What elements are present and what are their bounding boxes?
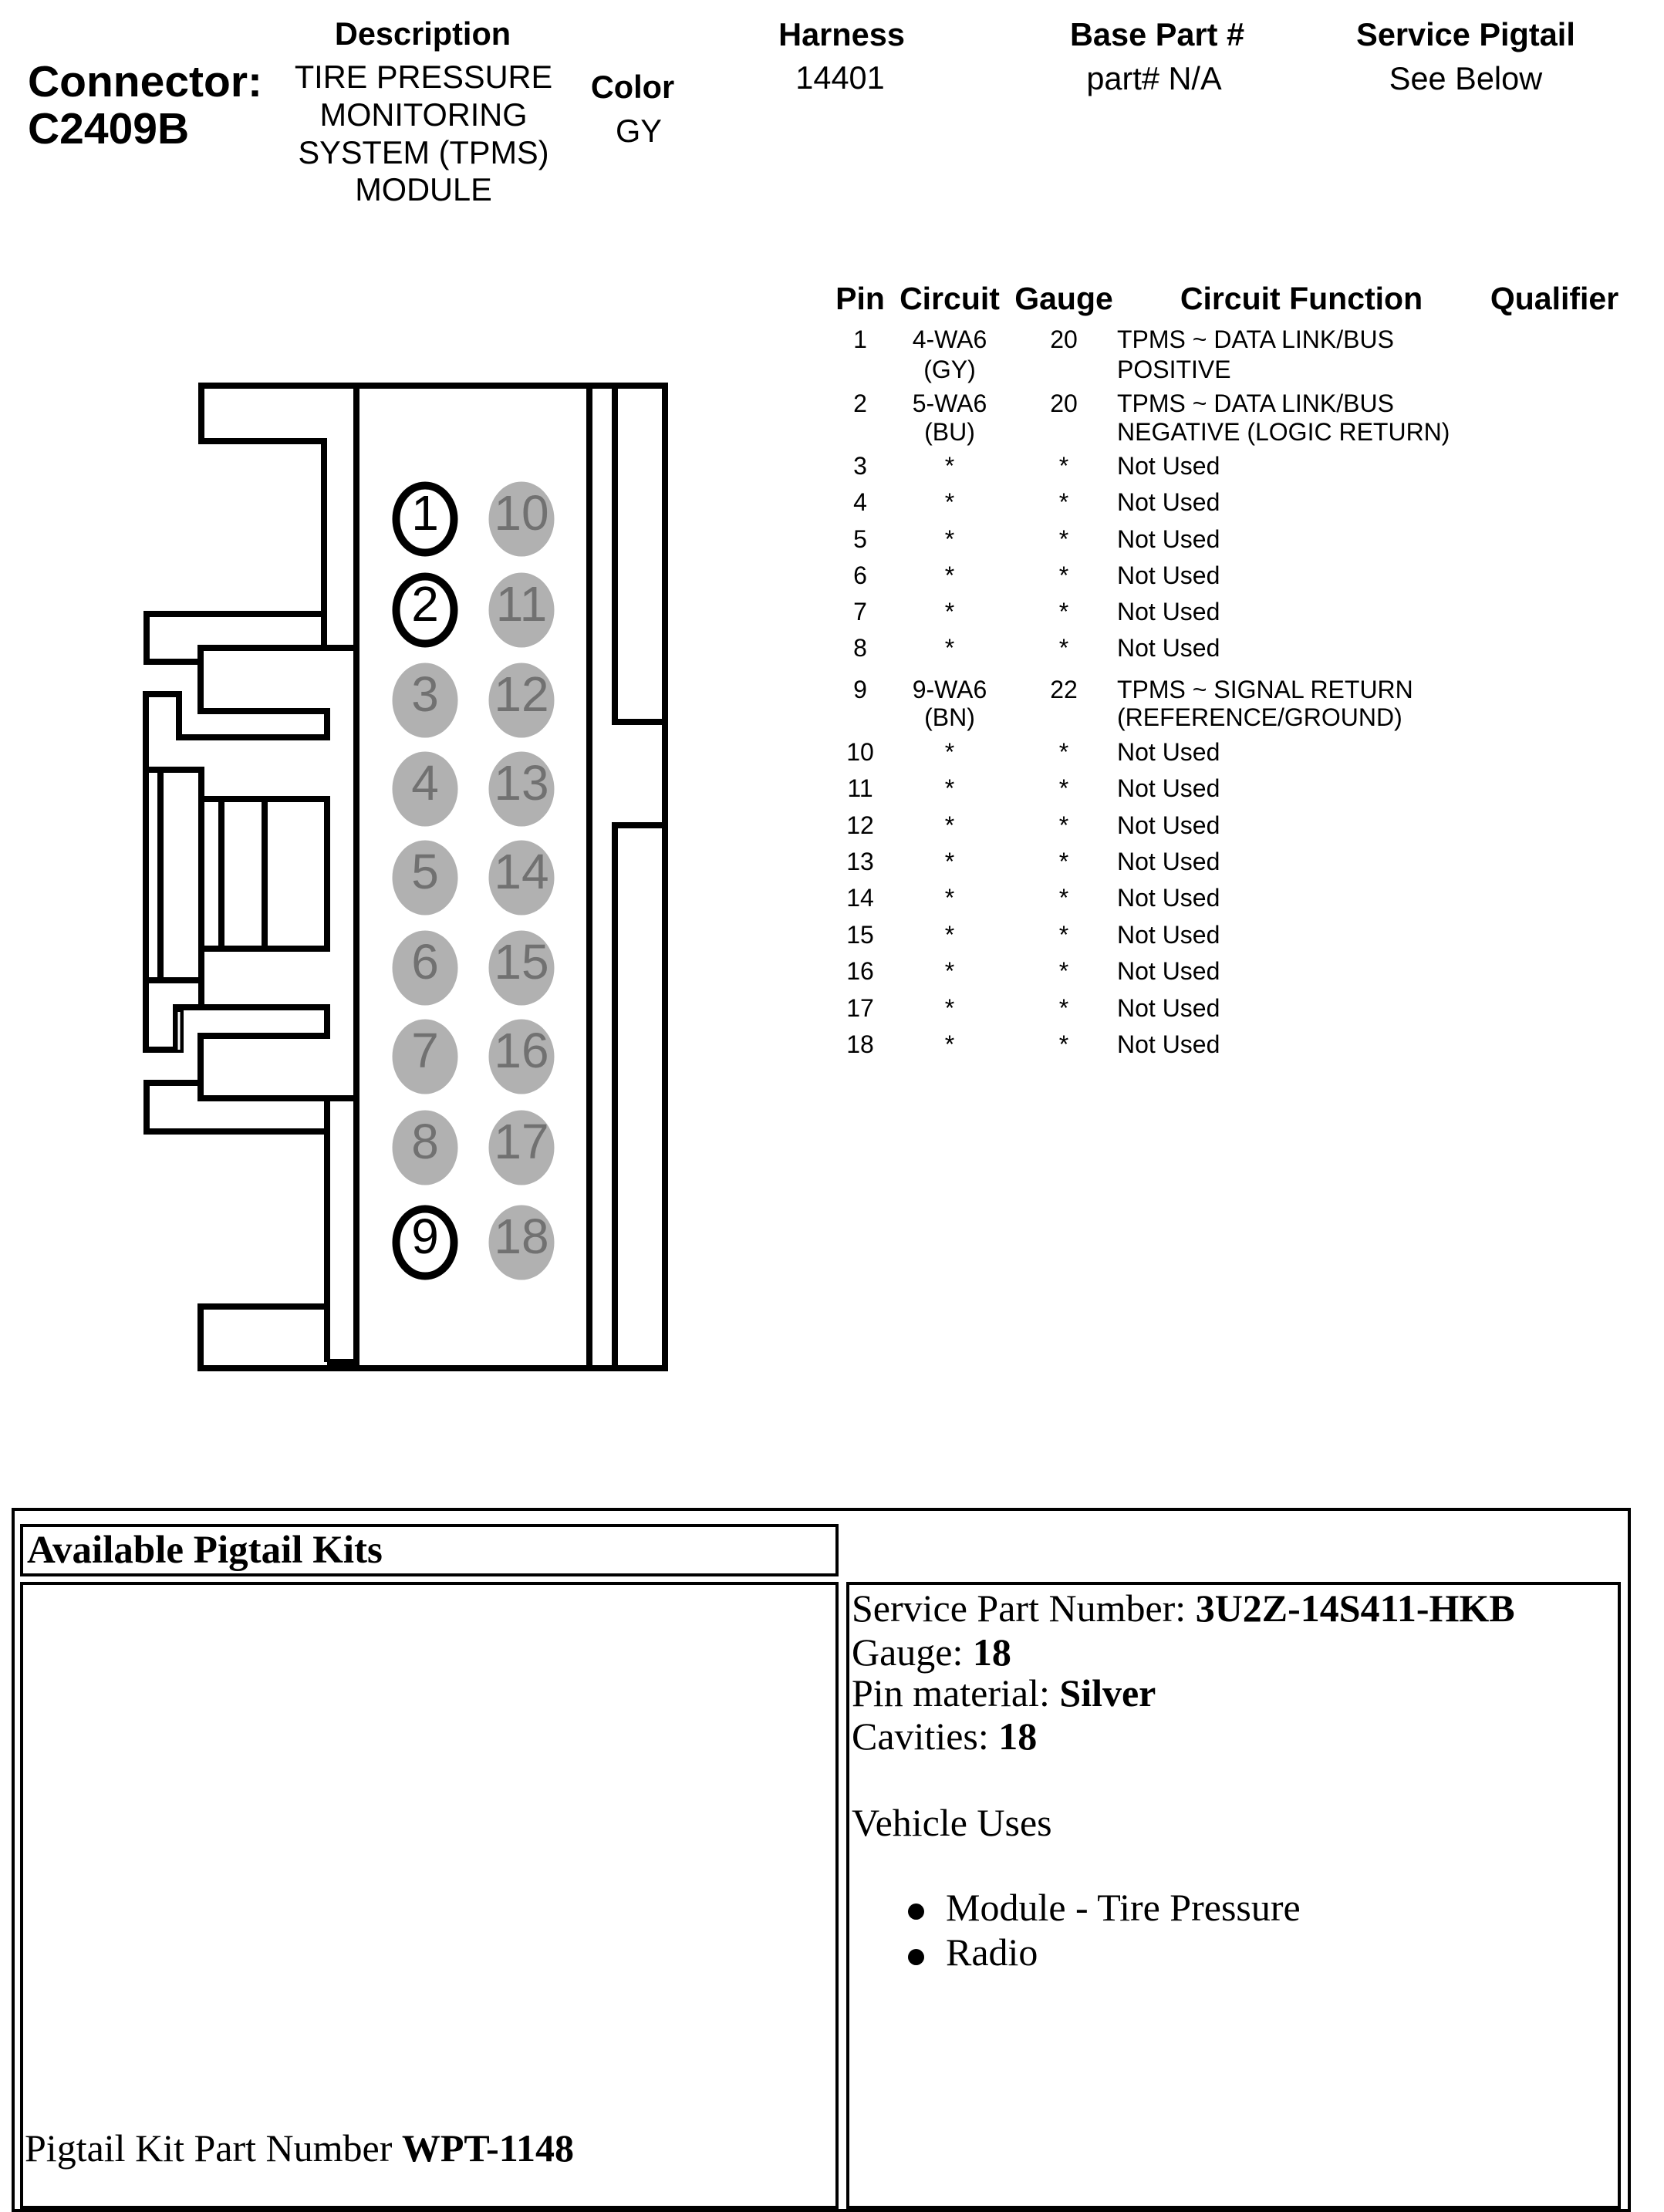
svg-text:5: 5	[411, 844, 439, 899]
svg-text:9: 9	[411, 1209, 439, 1264]
svg-text:14: 14	[494, 844, 548, 899]
svg-text:6: 6	[411, 934, 439, 990]
svg-text:16: 16	[494, 1023, 548, 1078]
svg-text:7: 7	[411, 1023, 439, 1078]
svg-text:10: 10	[494, 485, 548, 541]
svg-text:15: 15	[494, 934, 548, 990]
svg-text:1: 1	[411, 485, 439, 541]
svg-text:13: 13	[494, 755, 548, 811]
svg-text:8: 8	[411, 1114, 439, 1169]
svg-text:4: 4	[411, 755, 439, 811]
svg-text:3: 3	[411, 666, 439, 722]
svg-text:17: 17	[494, 1114, 548, 1169]
svg-text:11: 11	[496, 576, 547, 632]
svg-text:12: 12	[494, 666, 548, 722]
svg-text:2: 2	[411, 576, 439, 632]
svg-text:18: 18	[494, 1209, 548, 1264]
